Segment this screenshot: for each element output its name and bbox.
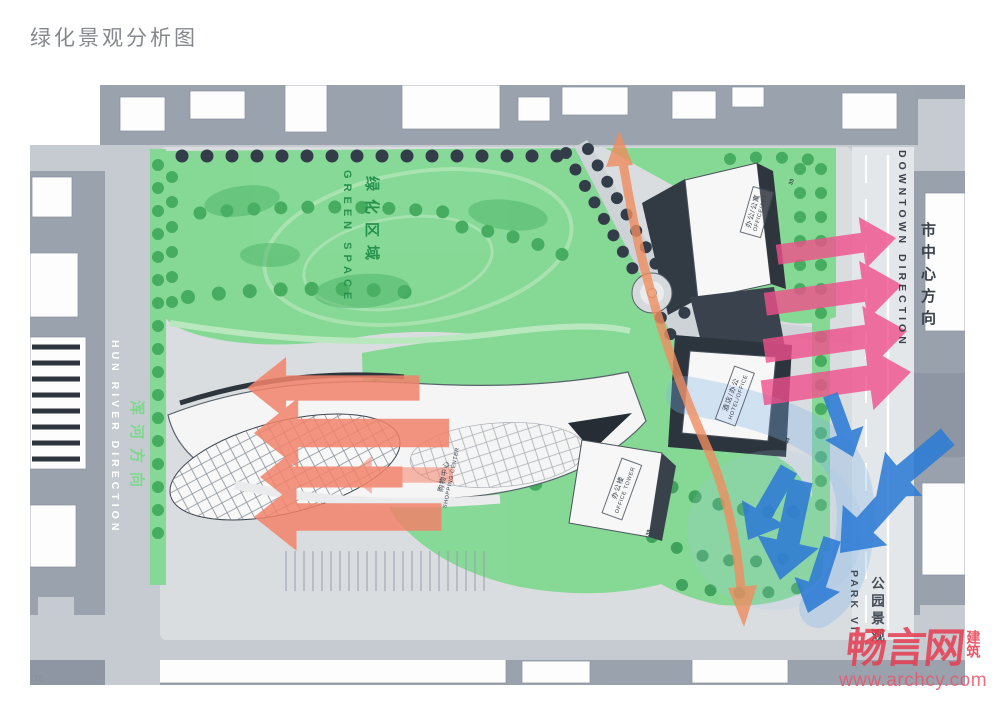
watermark: 畅言网 建筑 www.archcy.com — [826, 628, 1000, 692]
site-plan — [30, 85, 965, 685]
green-space-label: GREEN SPACE — [341, 170, 353, 304]
parking-stripes — [282, 551, 492, 591]
analysis-page: 绿化景观分析图 — [0, 0, 1000, 707]
page-number: 18 — [34, 674, 43, 683]
downtown-direction-label: DOWNTOWN DIRECTION — [896, 150, 908, 348]
watermark-logo: 畅言网 — [844, 628, 965, 669]
downtown-direction-label-cn: 市中心方向 — [917, 222, 938, 332]
hun-river-direction-label: HUN RIVER DIRECTION — [109, 340, 121, 534]
hun-river-direction-label-cn: 浑河方向 — [127, 400, 148, 496]
watermark-logo-side: 建筑 — [966, 630, 981, 658]
green-space-label-cn: 绿化区域 — [362, 176, 383, 268]
page-title: 绿化景观分析图 — [30, 22, 198, 52]
park-view-label: PARK VI — [848, 570, 860, 633]
watermark-url: www.archcy.com — [826, 670, 1000, 692]
